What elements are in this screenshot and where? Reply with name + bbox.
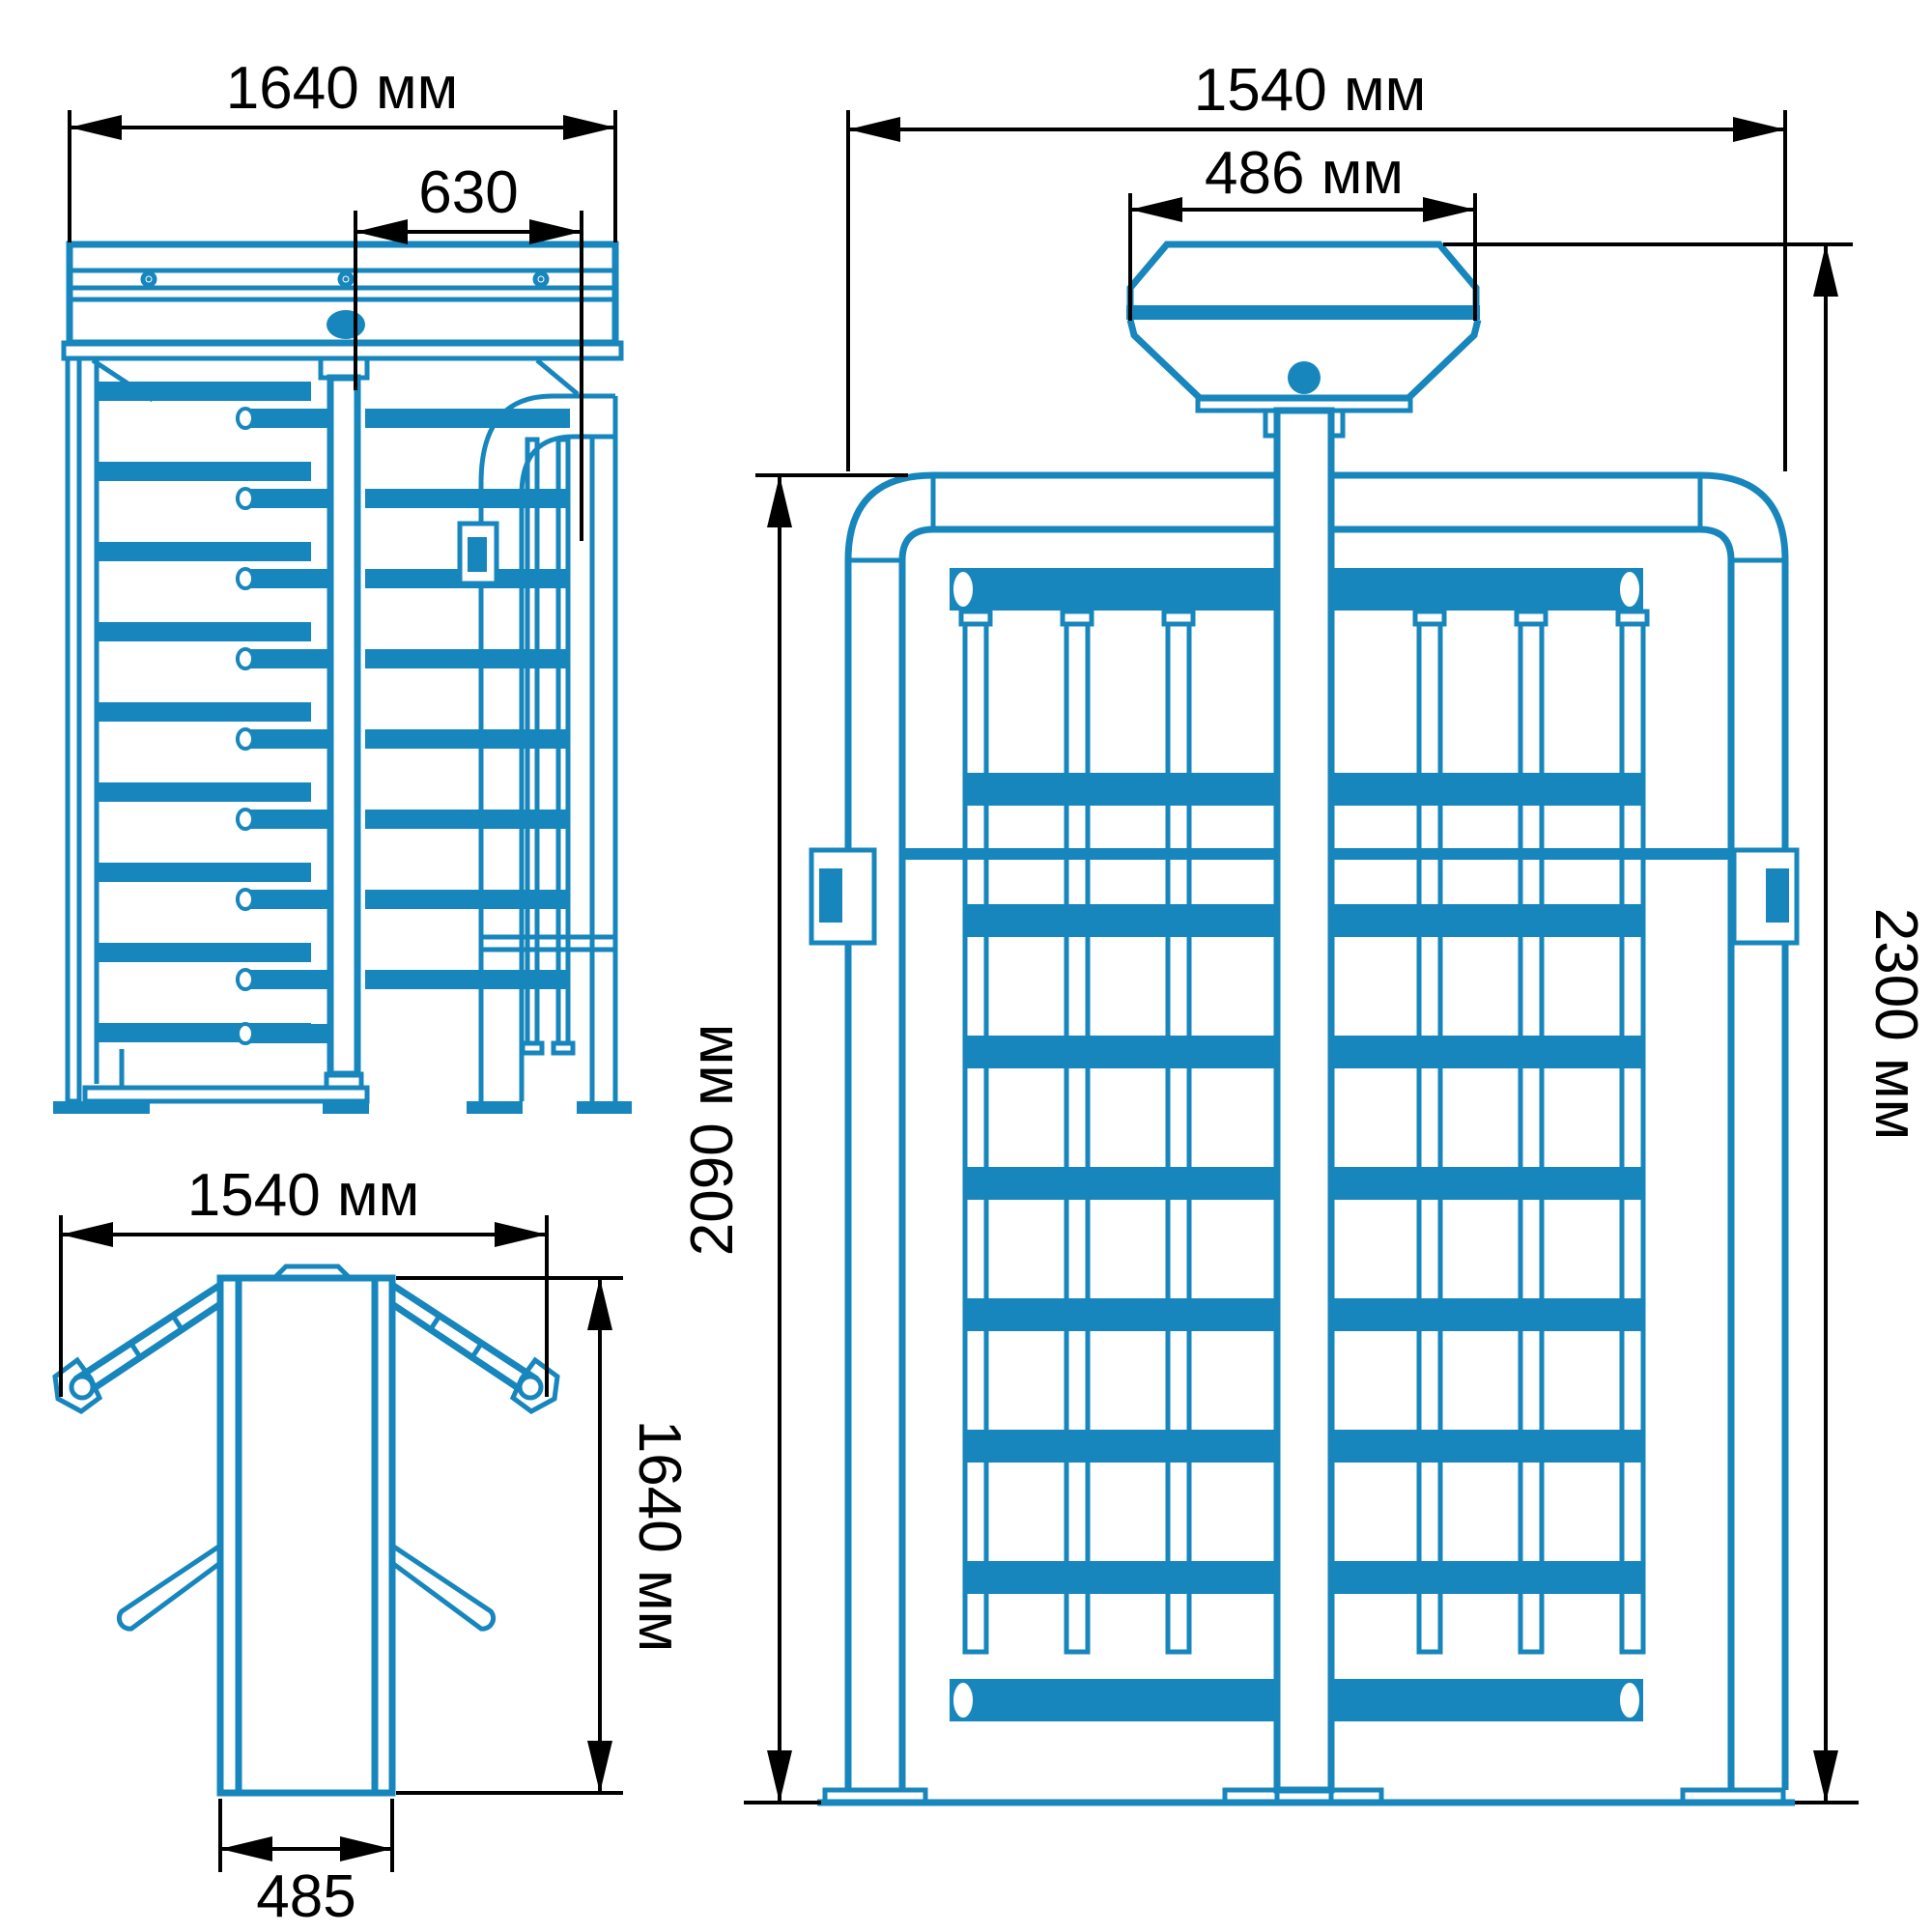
- plan-column-width-dimension: 485: [220, 1799, 392, 1930]
- side-offset-label: 630: [418, 159, 518, 226]
- plan-depth-label: 1640 мм: [626, 1420, 693, 1652]
- front-canopy-width-label: 486 мм: [1205, 140, 1404, 207]
- plan-depth-dimension: 1640 мм: [396, 1278, 693, 1793]
- side-rotor-arms: [99, 382, 311, 1042]
- front-view-drawing: [811, 244, 1797, 1803]
- housing-bolt: [143, 273, 155, 285]
- front-base: [817, 1790, 1795, 1803]
- plan-column: [220, 1278, 392, 1793]
- front-left-card-reader: [811, 850, 874, 943]
- plan-right-wing: [392, 1285, 557, 1411]
- front-frame-height-dimension: 2090 мм: [679, 475, 908, 1803]
- side-width-label: 1640 мм: [226, 55, 458, 122]
- front-canopy-width-dimension: 486 мм: [1130, 140, 1475, 321]
- housing-lock: [327, 310, 365, 339]
- canopy-lock: [1288, 361, 1321, 394]
- plan-width-label: 1540 мм: [187, 1162, 419, 1229]
- front-canopy: [1126, 244, 1480, 436]
- side-top-housing: [64, 244, 621, 358]
- front-right-card-reader: [1734, 850, 1797, 943]
- front-total-height-label: 2300 мм: [1862, 908, 1929, 1140]
- side-view-drawing: [53, 244, 632, 1114]
- drawing-canvas: 1640 мм 630: [0, 0, 1932, 1932]
- front-width-label: 1540 мм: [1194, 57, 1426, 124]
- side-base: [53, 1074, 632, 1114]
- side-rotor-column: [330, 378, 357, 1074]
- side-width-dimension: 1640 мм: [70, 55, 615, 242]
- turnstile-dimension-drawing: 1640 мм 630: [0, 0, 1932, 1932]
- side-card-reader: [460, 524, 497, 583]
- plan-column-width-label: 485: [256, 1863, 355, 1930]
- side-offset-dimension: 630: [355, 159, 582, 541]
- plan-view-drawing: [55, 1266, 557, 1793]
- plan-left-wing: [55, 1285, 220, 1411]
- housing-bolt: [340, 273, 352, 285]
- front-frame-height-label: 2090 мм: [679, 1024, 746, 1256]
- housing-bolt: [535, 273, 547, 285]
- front-center-column: [1277, 411, 1331, 1790]
